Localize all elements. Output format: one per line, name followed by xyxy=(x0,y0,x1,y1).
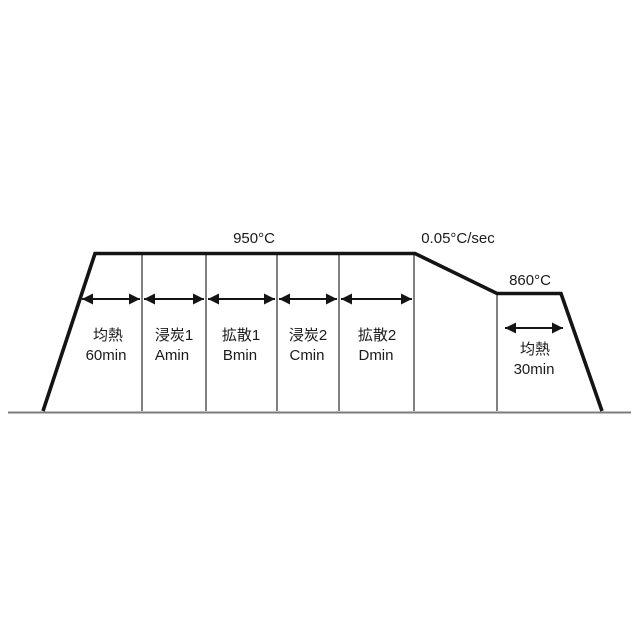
cooling-rate-label: 0.05°C/sec xyxy=(421,230,495,247)
peak-temperature-label: 950°C xyxy=(233,230,275,247)
stage-duration-label-5: Dmin xyxy=(358,347,393,364)
stage-duration-label-4: Cmin xyxy=(289,347,324,364)
stage-name-label-4: 浸炭2 xyxy=(289,327,327,344)
heat-treatment-diagram: 950°C 0.05°C/sec 860°C 均熱 60min 浸炭1 Amin… xyxy=(0,0,640,640)
stage-name-label-1: 均熱 xyxy=(93,327,123,344)
final-stage-name-label: 均熱 xyxy=(520,341,550,358)
final-stage-duration-label: 30min xyxy=(514,361,555,378)
stage-name-label-5: 拡散2 xyxy=(358,327,396,344)
stage-name-label-2: 浸炭1 xyxy=(155,327,193,344)
hold-temperature-label: 860°C xyxy=(509,272,551,289)
stage-duration-label-1: 60min xyxy=(86,347,127,364)
stage-duration-label-3: Bmin xyxy=(223,347,257,364)
diagram-canvas: 950°C 0.05°C/sec 860°C 均熱 60min 浸炭1 Amin… xyxy=(0,0,640,640)
stage-duration-label-2: Amin xyxy=(155,347,189,364)
stage-name-label-3: 拡散1 xyxy=(222,327,260,344)
